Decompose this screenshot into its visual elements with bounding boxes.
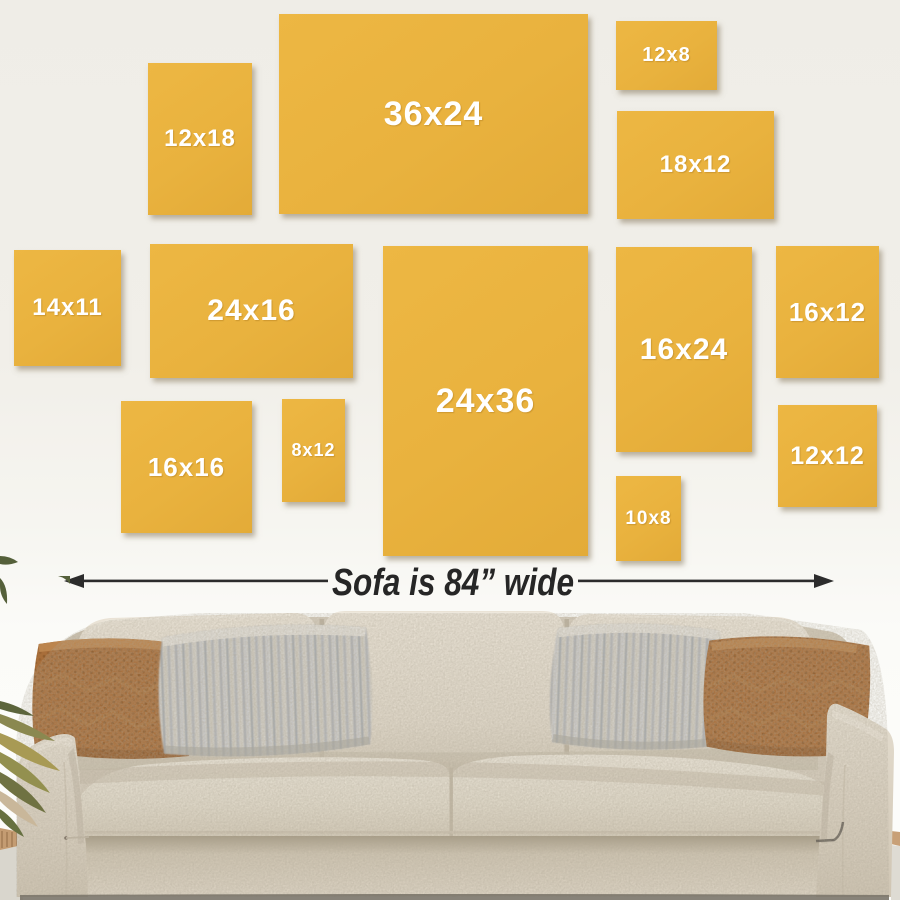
svg-text:Sofa is 84” wide: Sofa is 84” wide	[332, 562, 574, 604]
